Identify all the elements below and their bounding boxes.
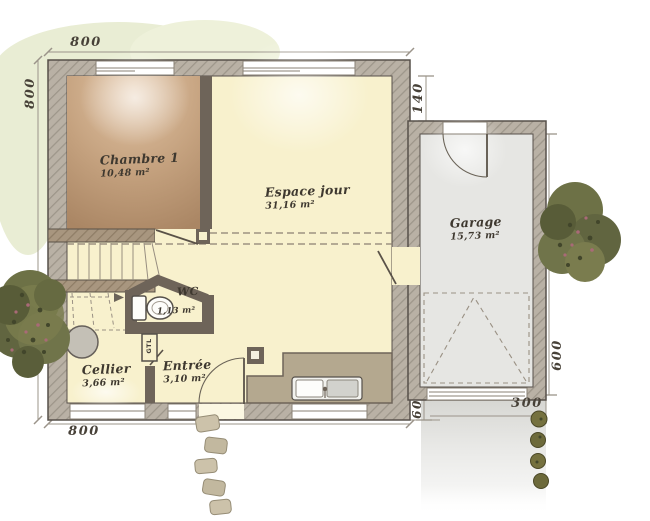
kitchen-sink-icon: [292, 377, 362, 400]
floor-plan-canvas: Chambre 1 10,48 m² Espace jour 31,16 m² …: [0, 0, 650, 521]
driveway: [421, 400, 546, 515]
window-espace-top: [243, 61, 355, 75]
garage-main-door: [427, 388, 527, 400]
entry-sidelight-window: [168, 404, 196, 419]
window-kitchen-bottom: [292, 404, 367, 419]
stepping-stones: [194, 414, 231, 515]
chambre-door: [155, 230, 198, 244]
chambre-partition-wall: [200, 76, 212, 229]
window-cellier-bottom: [70, 404, 145, 419]
gtl-box: [142, 334, 157, 361]
water-heater-icon: [66, 326, 98, 358]
floor-plan-drawing: [0, 0, 650, 521]
wc-bottom-wall: [125, 322, 214, 334]
cellier-divider-wall: [145, 366, 155, 403]
toilet-icon: [132, 296, 173, 320]
window-chambre-top: [96, 61, 174, 75]
tree-right: [538, 182, 621, 282]
chambre-door-post-inner: [199, 232, 207, 240]
